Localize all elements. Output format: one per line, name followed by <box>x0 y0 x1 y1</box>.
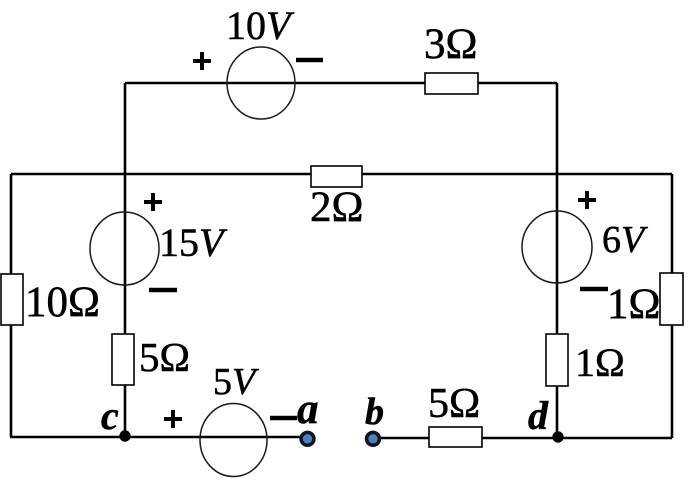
svg-text:a: a <box>297 386 319 433</box>
svg-text:b: b <box>365 391 384 433</box>
svg-text:c: c <box>101 393 119 438</box>
svg-text:10V: 10V <box>226 3 295 48</box>
svg-text:3Ω: 3Ω <box>424 21 477 68</box>
svg-text:15V: 15V <box>159 220 228 265</box>
svg-text:d: d <box>528 393 549 438</box>
svg-text:5V: 5V <box>213 361 259 403</box>
svg-text:6V: 6V <box>602 219 648 261</box>
svg-text:1Ω: 1Ω <box>607 281 660 328</box>
svg-text:5Ω: 5Ω <box>428 381 480 427</box>
svg-text:2Ω: 2Ω <box>310 184 363 231</box>
svg-text:5Ω: 5Ω <box>139 334 190 380</box>
svg-text:1Ω: 1Ω <box>575 340 625 385</box>
svg-text:10Ω: 10Ω <box>25 279 100 326</box>
